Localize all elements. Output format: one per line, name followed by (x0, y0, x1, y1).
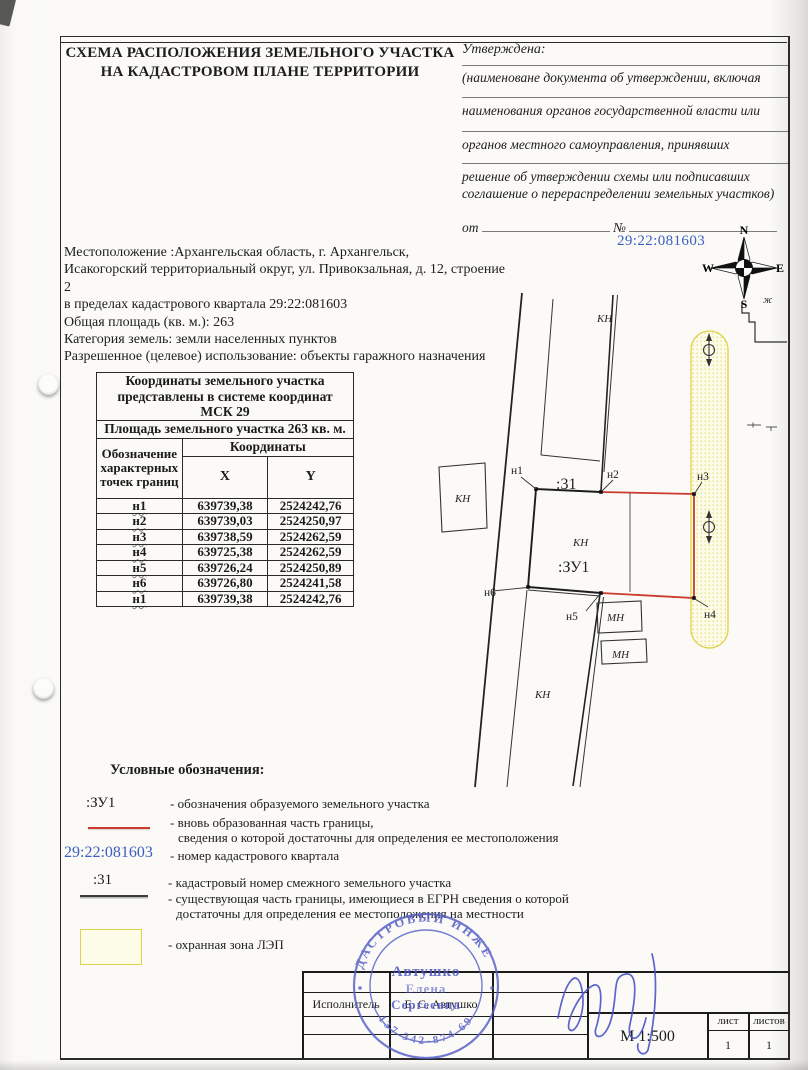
scanned-document-page: СХЕМА РАСПОЛОЖЕНИЯ ЗЕМЕЛЬНОГО УЧАСТКА НА… (0, 0, 808, 1070)
location-line3: в пределах кадастрового квартала 29:22:0… (64, 296, 514, 313)
number-blank-field (629, 218, 777, 232)
title-block-line (389, 971, 391, 1058)
blank-line (462, 131, 788, 132)
blank-line (462, 163, 788, 164)
legend-symbol-power-zone (80, 929, 142, 965)
x-value: 639726,24 (182, 560, 268, 576)
title-block-line (302, 971, 789, 973)
document-title-line1: СХЕМА РАСПОЛОЖЕНИЯ ЗЕМЕЛЬНОГО УЧАСТКА (64, 44, 456, 63)
point-name: н6 (97, 576, 183, 592)
sheet-label: лист (708, 1015, 748, 1027)
column-header-coordinates: Координаты (182, 438, 353, 456)
executor-label: Исполнитель (304, 997, 388, 1012)
blank-line (462, 65, 788, 66)
blank-line (462, 97, 788, 98)
y-value: 2524241,58 (268, 576, 354, 592)
table-row: н1639739,382524242,76 (97, 498, 354, 514)
location-line5: Категория земель: земли населенных пункт… (64, 331, 514, 348)
date-blank-field (482, 218, 610, 232)
y-value: 2524262,59 (268, 529, 354, 545)
point-name: н5 (97, 560, 183, 576)
approval-caption-2: наименования органов государственной вла… (462, 103, 788, 118)
approval-caption-5: соглашение о перераспределении земельных… (462, 186, 788, 201)
location-line2: Исакогорский территориальный округ, ул. … (64, 261, 514, 296)
caption-line: МСК 29 (97, 404, 353, 420)
legend-desc-new-boundary-1: - вновь образованная часть границы, (170, 815, 373, 830)
y-value: 2524242,76 (268, 498, 354, 514)
table-row: н1639739,382524242,76 (97, 591, 354, 607)
legend-desc-new-boundary-2: сведения о которой достаточны для опреде… (178, 830, 559, 845)
title-block-line (587, 1012, 789, 1014)
location-line1: Местоположение :Архангельская область, г… (64, 244, 514, 261)
column-header-x: X (182, 456, 268, 498)
title-block-line (302, 992, 589, 993)
punch-hole (38, 374, 59, 395)
x-value: 639739,03 (182, 514, 268, 530)
legend-symbol-31: :31 (93, 872, 112, 889)
title-block-line (492, 971, 494, 1058)
coordinates-table: Координаты земельного участка представле… (96, 372, 354, 607)
table-row: н2639739,032524250,97 (97, 514, 354, 530)
point-name: н1 (97, 498, 183, 514)
legend-desc-adjacent-parcel: - кадастровый номер смежного земельного … (168, 875, 451, 890)
approval-caption-1: (наименоване документа об утверждении, в… (462, 70, 788, 85)
legend-desc-existing-boundary-1: - существующая часть границы, имеющиеся … (168, 891, 569, 906)
punch-hole (33, 678, 54, 699)
table-row: н3639738,592524262,59 (97, 529, 354, 545)
executor-name: Е. С. Автушко (391, 997, 491, 1012)
approval-caption-4: решение об утверждении схемы или подписа… (462, 169, 788, 184)
scan-corner-artifact (0, 0, 16, 27)
title-block-line (302, 1016, 589, 1017)
location-block: Местоположение :Архангельская область, г… (64, 244, 514, 366)
caption-line: представлены в системе координат (97, 389, 353, 405)
x-value: 639739,38 (182, 591, 268, 607)
y-value: 2524262,59 (268, 545, 354, 561)
sheets-label: листов (749, 1015, 789, 1027)
table-row: н6639726,802524241,58 (97, 576, 354, 592)
approval-label: Утверждена: (462, 42, 788, 57)
legend-desc-zu1: - обозначения образуемого земельного уча… (170, 796, 430, 811)
location-line6: Разрешенное (целевое) использование: объ… (64, 348, 514, 365)
y-value: 2524250,89 (268, 560, 354, 576)
area-row: Площадь земельного участка 263 кв. м. (97, 420, 354, 438)
x-value: 639739,38 (182, 498, 268, 514)
x-value: 639726,80 (182, 576, 268, 592)
legend-desc-quarter-number: - номер кадастрового квартала (170, 848, 339, 863)
legend-symbol-quarter-number: 29:22:081603 (64, 844, 153, 862)
document-title: СХЕМА РАСПОЛОЖЕНИЯ ЗЕМЕЛЬНОГО УЧАСТКА НА… (64, 44, 456, 82)
table-row: н5639726,242524250,89 (97, 560, 354, 576)
coordinates-table-caption: Координаты земельного участка представле… (97, 373, 354, 421)
column-header-y: Y (268, 456, 354, 498)
scale-value: М 1:500 (589, 1028, 706, 1046)
legend-symbol-new-boundary (88, 827, 150, 829)
point-name: н4 (97, 545, 183, 561)
y-value: 2524250,97 (268, 514, 354, 530)
sheet-value: 1 (708, 1038, 748, 1053)
title-block-line (707, 1030, 789, 1031)
table-row: н4639725,382524262,59 (97, 545, 354, 561)
legend-symbol-zu1: :ЗУ1 (86, 795, 115, 812)
legend-symbol-existing-boundary (80, 895, 148, 897)
cadastral-quarter-number: 29:22:081603 (617, 233, 705, 250)
column-header-points: Обозначение характерных точек границ (97, 438, 183, 498)
point-name: н1 (97, 591, 183, 607)
sheets-value: 1 (749, 1038, 789, 1053)
y-value: 2524242,76 (268, 591, 354, 607)
x-value: 639738,59 (182, 529, 268, 545)
point-name: н2 (97, 514, 183, 530)
caption-line: Координаты земельного участка (97, 373, 353, 389)
title-block-line (302, 971, 304, 1058)
legend-desc-existing-boundary-2: достаточны для определения ее местополож… (176, 906, 524, 921)
document-title-line2: НА КАДАСТРОВОМ ПЛАНЕ ТЕРРИТОРИИ (64, 63, 456, 82)
point-name: н3 (97, 529, 183, 545)
from-label: от (462, 220, 479, 235)
location-line4: Общая площадь (кв. м.): 263 (64, 314, 514, 331)
legend-heading: Условные обозначения: (110, 762, 265, 779)
x-value: 639725,38 (182, 545, 268, 561)
title-block-line (302, 1034, 589, 1035)
legend-desc-power-zone: - охранная зона ЛЭП (168, 937, 284, 952)
approval-caption-3: органов местного самоуправления, принявш… (462, 137, 788, 152)
